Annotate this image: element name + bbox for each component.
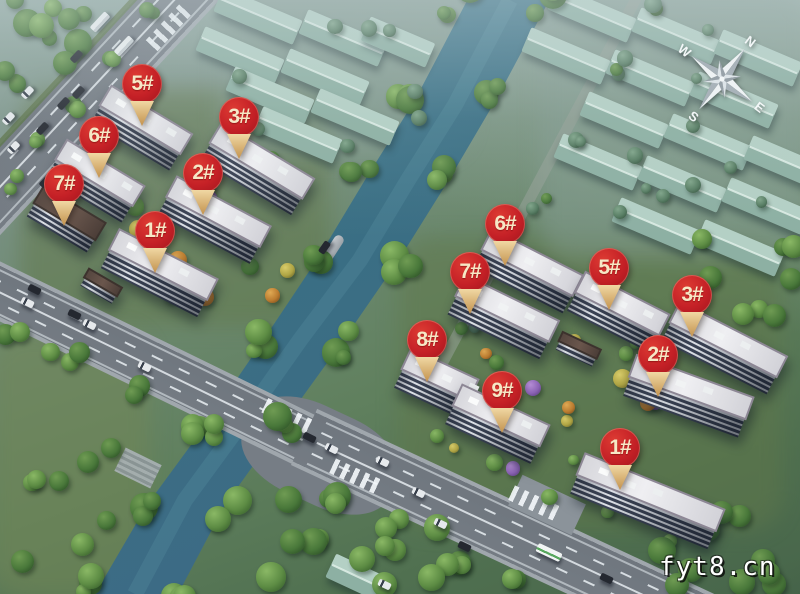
pin-label: 6# <box>494 212 515 236</box>
pin-pointer-icon <box>597 285 621 310</box>
pin-head: 1# <box>135 211 175 251</box>
tree <box>407 84 422 99</box>
aerial-site-plan: N E S W 5# 6# 3# 2# 7# 1# 6# 7# 5# <box>0 0 800 594</box>
pin-pointer-icon <box>458 289 482 314</box>
tree <box>489 355 504 370</box>
tree <box>526 4 543 21</box>
tree <box>780 268 800 291</box>
pin-label: 6# <box>88 124 109 148</box>
tree <box>4 183 17 196</box>
pin-left-2[interactable]: 2# <box>183 153 223 217</box>
compass-south-label: S <box>686 108 702 125</box>
tree <box>398 254 423 279</box>
pin-right-8[interactable]: 8# <box>407 320 447 384</box>
pin-label: 2# <box>192 161 213 185</box>
pin-label: 7# <box>53 172 74 196</box>
pin-head: 8# <box>407 320 447 360</box>
pin-label: 2# <box>647 343 668 367</box>
tree <box>489 78 506 95</box>
tree <box>361 20 377 36</box>
pin-pointer-icon <box>490 408 514 433</box>
pin-pointer-icon <box>646 372 670 397</box>
pin-label: 3# <box>228 105 249 129</box>
pin-label: 1# <box>609 436 630 460</box>
tree <box>526 202 538 214</box>
tree <box>349 546 375 572</box>
compass-north-label: N <box>742 33 759 51</box>
pin-head: 7# <box>44 164 84 204</box>
pin-label: 5# <box>131 72 152 96</box>
tree <box>502 569 522 589</box>
tree <box>58 8 80 30</box>
tree <box>263 402 292 431</box>
tree <box>10 322 30 342</box>
pin-pointer-icon <box>493 241 517 266</box>
tree <box>782 235 800 258</box>
pin-right-5[interactable]: 5# <box>589 248 629 312</box>
pin-right-7[interactable]: 7# <box>450 252 490 316</box>
pin-label: 9# <box>491 379 512 403</box>
pin-head: 2# <box>638 335 678 375</box>
tree <box>10 169 24 183</box>
pin-pointer-icon <box>191 190 215 215</box>
compass-west-label: W <box>675 41 694 61</box>
compass-rose-icon: N E S W <box>662 19 782 139</box>
tree <box>692 229 711 248</box>
tree <box>617 50 634 67</box>
tree <box>756 196 768 208</box>
tree <box>280 529 305 554</box>
pin-right-2[interactable]: 2# <box>638 335 678 399</box>
pin-head: 7# <box>450 252 490 292</box>
pin-head: 3# <box>219 97 259 137</box>
pin-label: 3# <box>681 283 702 307</box>
tree <box>641 183 652 194</box>
tree <box>619 346 633 360</box>
tree <box>232 69 246 83</box>
pin-pointer-icon <box>680 312 704 337</box>
pin-head: 9# <box>482 371 522 411</box>
tree <box>265 288 280 303</box>
pin-label: 7# <box>459 260 480 284</box>
compass-east-label: E <box>752 99 768 116</box>
pin-head: 5# <box>589 248 629 288</box>
pin-left-5[interactable]: 5# <box>122 64 162 128</box>
pin-head: 6# <box>79 116 119 156</box>
pin-pointer-icon <box>608 465 632 490</box>
watermark: fyt8.cn <box>659 552 776 582</box>
tree <box>627 147 644 164</box>
tree <box>562 401 575 414</box>
tree <box>568 455 578 465</box>
pin-pointer-icon <box>143 248 167 273</box>
pin-head: 5# <box>122 64 162 104</box>
tree <box>245 319 271 345</box>
tree <box>11 550 34 573</box>
pin-right-3[interactable]: 3# <box>672 275 712 339</box>
pin-head: 6# <box>485 204 525 244</box>
pin-left-3[interactable]: 3# <box>219 97 259 161</box>
tree <box>506 461 521 476</box>
pin-left-6[interactable]: 6# <box>79 116 119 180</box>
pin-label: 8# <box>416 328 437 352</box>
pin-pointer-icon <box>227 134 251 159</box>
pin-label: 1# <box>144 219 165 243</box>
tree <box>29 136 42 149</box>
pin-pointer-icon <box>130 101 154 126</box>
pin-pointer-icon <box>415 357 439 382</box>
tree <box>340 139 354 153</box>
tree <box>541 489 557 505</box>
pin-head: 2# <box>183 153 223 193</box>
pin-left-1[interactable]: 1# <box>135 211 175 275</box>
tree <box>763 304 786 327</box>
tree <box>256 562 286 592</box>
pin-head: 3# <box>672 275 712 315</box>
tree <box>418 564 445 591</box>
tree <box>69 342 90 363</box>
pin-right-1[interactable]: 1# <box>600 428 640 492</box>
tree <box>97 511 116 530</box>
pin-left-7[interactable]: 7# <box>44 164 84 228</box>
pin-pointer-icon <box>87 153 111 178</box>
tree <box>427 170 447 190</box>
tree <box>685 177 701 193</box>
pin-label: 5# <box>598 256 619 280</box>
tree <box>341 162 362 183</box>
pin-pointer-icon <box>52 201 76 226</box>
tree <box>383 24 395 36</box>
tree <box>41 343 60 362</box>
pin-right-9[interactable]: 9# <box>482 371 522 435</box>
pin-right-6[interactable]: 6# <box>485 204 525 268</box>
tree <box>280 263 295 278</box>
tree <box>27 470 46 489</box>
tree <box>181 422 204 445</box>
tree <box>613 205 627 219</box>
tree <box>575 136 586 147</box>
pin-head: 1# <box>600 428 640 468</box>
tree <box>139 2 155 18</box>
